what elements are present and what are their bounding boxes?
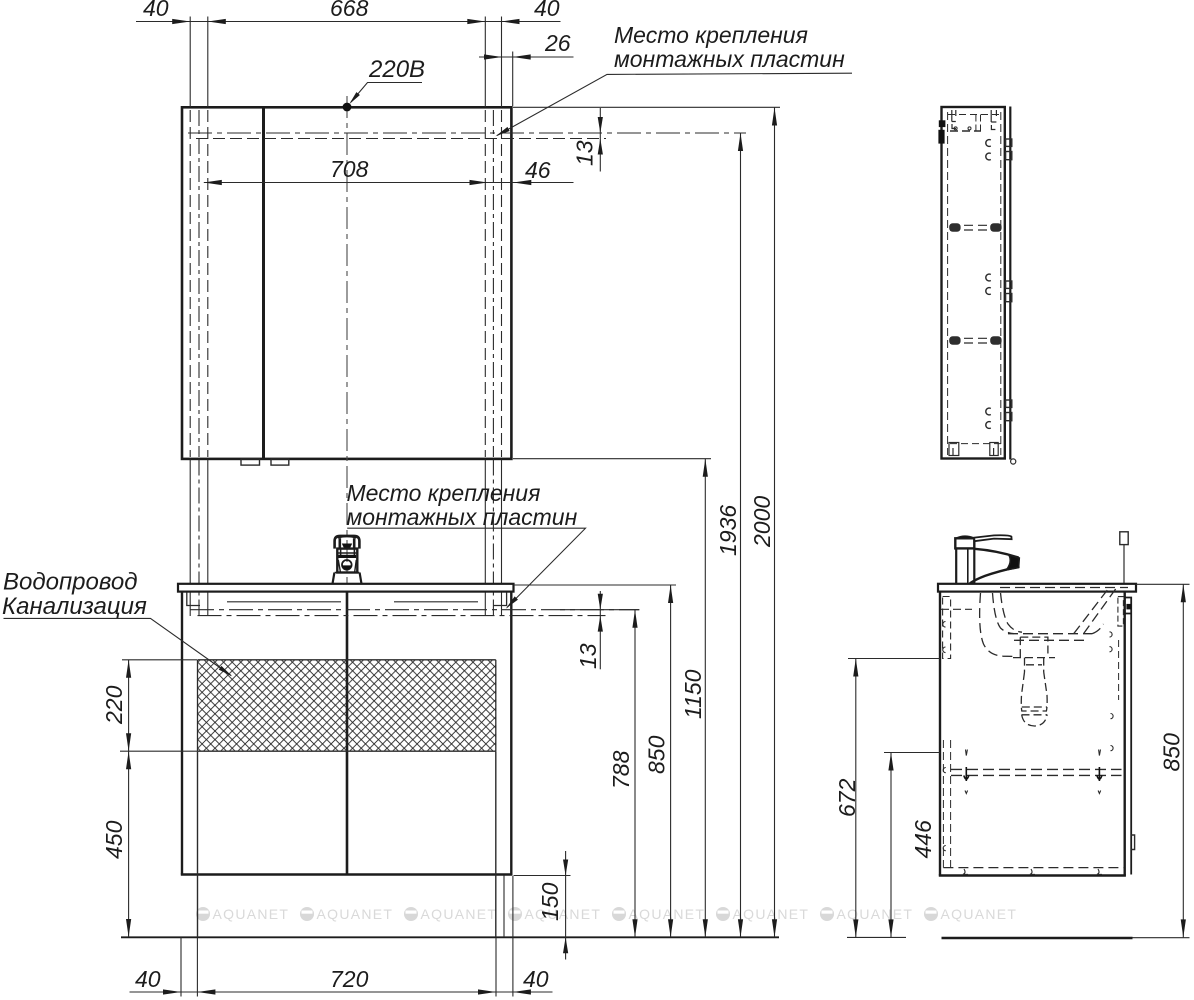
svg-text:1150: 1150 [680, 669, 706, 719]
svg-text:788: 788 [608, 750, 634, 789]
svg-text:Канализация: Канализация [2, 593, 147, 620]
svg-text:Место крепления: Место крепления [614, 22, 808, 48]
svg-text:708: 708 [330, 156, 369, 182]
svg-text:850: 850 [1159, 733, 1185, 772]
svg-text:Водопровод: Водопровод [3, 569, 137, 596]
svg-text:450: 450 [101, 820, 127, 859]
svg-text:AQUANET: AQUANET [941, 906, 1018, 922]
svg-text:AQUANET: AQUANET [733, 906, 810, 922]
svg-text:220В: 220В [368, 56, 425, 83]
svg-text:446: 446 [910, 820, 936, 859]
svg-text:26: 26 [544, 30, 571, 56]
svg-text:монтажных пластин: монтажных пластин [614, 46, 845, 72]
svg-text:40: 40 [523, 966, 549, 992]
svg-text:668: 668 [330, 0, 369, 21]
svg-text:13: 13 [572, 140, 598, 166]
svg-text:40: 40 [143, 0, 169, 21]
svg-text:40: 40 [135, 966, 161, 992]
svg-text:220: 220 [101, 685, 127, 725]
svg-text:AQUANET: AQUANET [317, 906, 394, 922]
svg-text:AQUANET: AQUANET [629, 906, 706, 922]
svg-text:40: 40 [534, 0, 560, 21]
svg-text:AQUANET: AQUANET [213, 906, 290, 922]
svg-text:150: 150 [537, 882, 563, 921]
svg-text:720: 720 [330, 966, 369, 992]
svg-text:2000: 2000 [749, 496, 775, 548]
svg-text:13: 13 [575, 643, 601, 669]
svg-text:850: 850 [644, 735, 670, 774]
svg-text:монтажных пластин: монтажных пластин [347, 504, 578, 530]
svg-text:1936: 1936 [715, 505, 741, 556]
svg-text:AQUANET: AQUANET [421, 906, 498, 922]
svg-text:672: 672 [834, 778, 860, 817]
svg-text:Место крепления: Место крепления [347, 480, 541, 506]
svg-text:AQUANET: AQUANET [837, 906, 914, 922]
svg-text:46: 46 [525, 157, 551, 183]
